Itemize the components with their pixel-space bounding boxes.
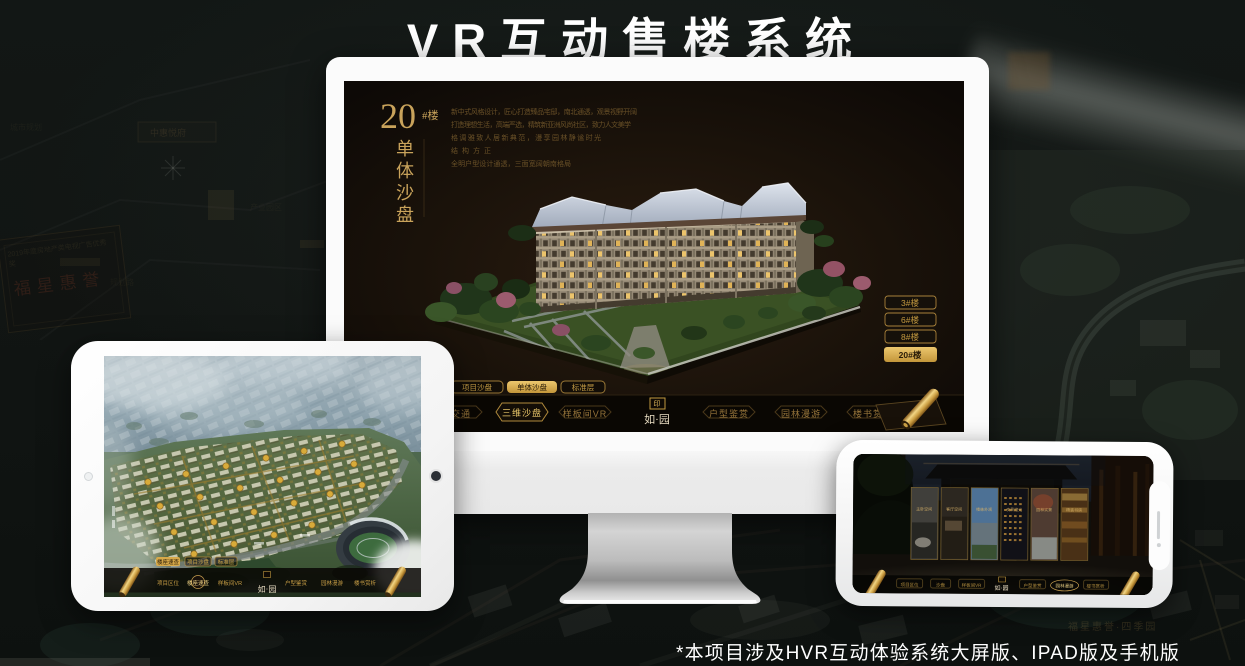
svg-text:20#楼: 20#楼: [899, 350, 922, 360]
svg-text:印: 印: [654, 400, 661, 408]
svg-text:样板间VR: 样板间VR: [218, 579, 242, 587]
svg-text:6#楼: 6#楼: [901, 315, 919, 325]
svg-text:城市规划: 城市规划: [10, 122, 42, 132]
svg-text:园林漫游: 园林漫游: [321, 579, 344, 587]
svg-text:标准层: 标准层: [572, 382, 595, 392]
svg-text:标准层: 标准层: [218, 558, 235, 566]
svg-text:如·园: 如·园: [644, 412, 670, 426]
svg-text:主卧空间: 主卧空间: [916, 505, 932, 511]
svg-text:盘: 盘: [396, 205, 414, 225]
svg-text:楼座速查: 楼座速查: [157, 558, 180, 566]
svg-text:产业园区: 产业园区: [250, 202, 282, 212]
svg-text:如·园: 如·园: [995, 584, 1009, 592]
svg-text:沙: 沙: [396, 183, 414, 203]
svg-text:楼书赏析: 楼书赏析: [354, 579, 377, 587]
svg-text:楼座速查: 楼座速查: [187, 579, 210, 587]
svg-text:夜景燈光: 夜景燈光: [1006, 506, 1022, 512]
svg-text:户型鉴赏: 户型鉴赏: [285, 579, 308, 587]
svg-text:3#楼: 3#楼: [901, 298, 919, 308]
svg-text:样板间VR: 样板间VR: [563, 408, 608, 419]
svg-text:沙盘: 沙盘: [936, 582, 946, 588]
svg-text:20: 20: [380, 96, 416, 136]
svg-text:园林漫游: 园林漫游: [781, 408, 821, 419]
svg-text:全明户型设计通透，三面宽阔朝南格局: 全明户型设计通透，三面宽阔朝南格局: [451, 159, 571, 168]
svg-text:格调雅致人居新典范，漫享园林静谧时光: 格调雅致人居新典范，漫享园林静谧时光: [451, 133, 601, 142]
svg-text:精装书房: 精装书房: [1066, 506, 1082, 512]
svg-text:8#楼: 8#楼: [901, 332, 919, 342]
svg-text:#楼: #楼: [422, 108, 439, 122]
svg-text:如·园: 如·园: [258, 584, 277, 594]
svg-text:三维沙盘: 三维沙盘: [502, 407, 542, 418]
svg-text:园林实景: 园林实景: [1036, 506, 1052, 512]
svg-text:新中式风格设计，匠心打造臻品宅邸，南北通透，观景视野开阔: 新中式风格设计，匠心打造臻品宅邸，南北通透，观景视野开阔: [451, 107, 637, 116]
svg-text:项目沙盘: 项目沙盘: [187, 558, 210, 566]
svg-text:体: 体: [396, 161, 414, 181]
svg-text:打造理想生活，高端严选，精筑新亚洲风尚社区，致力人文美学: 打造理想生活，高端严选，精筑新亚洲风尚社区，致力人文美学: [451, 120, 631, 129]
svg-text:客厅空间: 客厅空间: [946, 506, 962, 512]
svg-text:单体沙盘: 单体沙盘: [517, 382, 547, 392]
svg-text:中惠悦府: 中惠悦府: [150, 127, 186, 138]
svg-text:项目沙盘: 项目沙盘: [462, 382, 492, 392]
svg-text:楼栋外观: 楼栋外观: [976, 506, 992, 512]
svg-text:户型鉴赏: 户型鉴赏: [709, 408, 749, 419]
svg-text:单: 单: [396, 139, 414, 159]
svg-text:项目区位: 项目区位: [157, 579, 180, 587]
